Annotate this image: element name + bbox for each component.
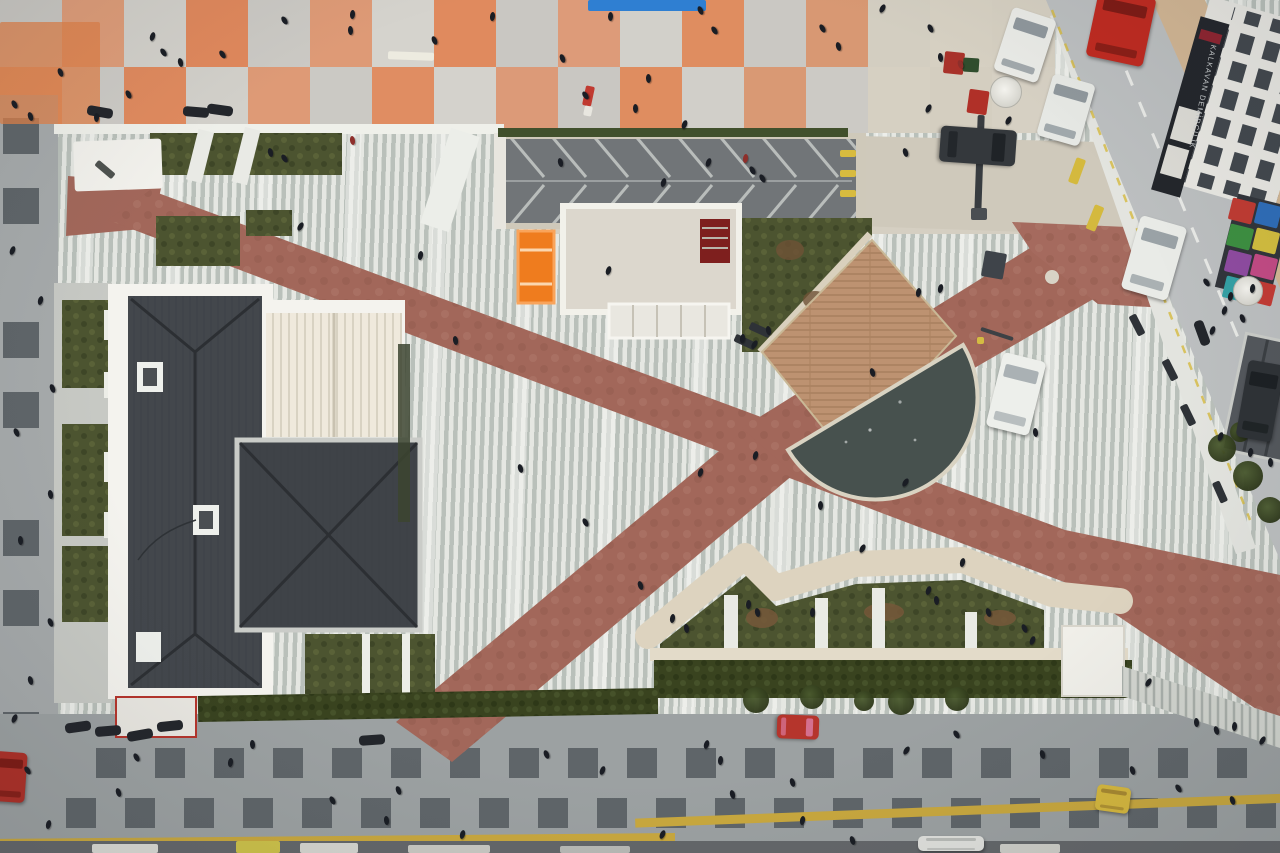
misc-object: [588, 0, 706, 11]
person-dot: [878, 3, 887, 13]
person-dot: [633, 104, 638, 113]
person-dot: [835, 42, 842, 52]
person-dot: [1032, 428, 1038, 438]
person-dot: [742, 154, 748, 164]
car-yellow-cart: [1094, 784, 1131, 814]
person-dot: [12, 427, 20, 437]
person-dot: [729, 790, 736, 800]
tree: [888, 689, 914, 715]
motorcycle: [95, 725, 122, 737]
misc-object: [583, 105, 593, 116]
person-dot: [227, 758, 233, 768]
car-red-truck: [1085, 0, 1156, 67]
motorcycle: [183, 106, 210, 118]
person-dot: [754, 608, 761, 618]
person-dot: [869, 367, 876, 377]
person-dot: [383, 816, 389, 826]
person-dot: [705, 157, 713, 167]
person-dot: [349, 136, 355, 146]
misc-object: [94, 160, 115, 180]
misc-object: [1254, 201, 1280, 228]
person-dot: [47, 490, 54, 500]
bench: [1180, 403, 1197, 426]
person-dot: [799, 816, 806, 826]
person-dot: [952, 729, 961, 739]
person-dot: [1258, 735, 1267, 745]
person-dot: [915, 288, 922, 298]
misc-object: [236, 841, 280, 853]
person-dot: [149, 31, 156, 41]
person-dot: [296, 221, 305, 231]
person-dot: [1209, 325, 1217, 335]
person-dot: [1020, 623, 1028, 633]
umbrella: [990, 76, 1022, 108]
scene-items: [0, 0, 1280, 853]
car-rear-window: [1095, 42, 1138, 59]
person-dot: [658, 829, 666, 839]
car-rear-window: [1044, 123, 1077, 139]
person-dot: [646, 74, 651, 83]
person-dot: [1213, 725, 1220, 735]
motorcycle: [157, 720, 184, 733]
person-dot: [1202, 277, 1211, 287]
tree: [743, 687, 769, 713]
bench: [1212, 480, 1228, 503]
car-rear-window: [1129, 274, 1165, 292]
car-rear-window: [0, 790, 20, 798]
car-windshield: [1012, 17, 1049, 39]
person-dot: [748, 165, 757, 175]
person-dot: [132, 752, 141, 762]
car-red-vehicle-left: [0, 751, 28, 803]
motorcycle: [126, 728, 153, 742]
person-dot: [557, 158, 564, 168]
person-dot: [1268, 458, 1273, 467]
car-windshield: [0, 758, 23, 769]
car-windshield: [1003, 363, 1039, 384]
misc-object: [840, 150, 856, 157]
person-dot: [669, 614, 675, 624]
person-dot: [926, 23, 935, 33]
car-windshield: [1053, 83, 1088, 103]
car-white-sedan-c: [1120, 215, 1187, 301]
misc-object: [1252, 227, 1280, 254]
car-windshield: [805, 718, 813, 736]
misc-object: [963, 57, 980, 72]
person-dot: [959, 558, 966, 568]
car-red-cart: [777, 714, 820, 739]
car-rear-window: [781, 718, 787, 735]
person-dot: [818, 501, 823, 510]
person-dot: [559, 53, 567, 63]
person-dot: [697, 467, 704, 477]
person-dot: [280, 15, 289, 25]
person-dot: [542, 749, 550, 759]
car-rear-window: [927, 848, 975, 850]
person-dot: [924, 103, 933, 113]
misc-object: [1000, 844, 1060, 853]
person-dot: [703, 739, 710, 749]
misc-object: [840, 170, 856, 177]
person-dot: [27, 676, 34, 686]
person-dot: [810, 608, 815, 617]
misc-object: [840, 190, 856, 197]
misc-object: [980, 327, 1014, 341]
person-dot: [1239, 313, 1247, 323]
misc-object: [971, 208, 987, 220]
car-white-cart: [918, 836, 984, 851]
person-dot: [1144, 677, 1153, 687]
person-dot: [1227, 292, 1234, 302]
umbrella: [1233, 276, 1263, 306]
car-rear-window: [1242, 420, 1269, 434]
person-dot: [710, 25, 719, 35]
tree: [800, 685, 824, 709]
misc-object: [966, 89, 989, 116]
misc-object: [1068, 157, 1086, 185]
person-dot: [489, 12, 495, 22]
person-dot: [280, 153, 289, 163]
person-dot: [18, 536, 24, 545]
person-dot: [459, 830, 466, 840]
person-dot: [517, 463, 524, 473]
car-windshield: [1101, 788, 1127, 796]
person-dot: [177, 58, 184, 68]
person-dot: [1004, 115, 1013, 125]
person-dot: [45, 820, 52, 830]
person-dot: [608, 12, 613, 21]
person-dot: [599, 765, 607, 775]
person-dot: [124, 89, 133, 99]
person-dot: [937, 284, 944, 294]
tree: [854, 691, 874, 711]
person-dot: [9, 245, 17, 255]
motorcycle: [206, 103, 233, 117]
person-dot: [902, 147, 910, 157]
person-dot: [789, 777, 796, 787]
person-dot: [660, 177, 667, 187]
person-dot: [985, 607, 993, 617]
person-dot: [605, 265, 613, 275]
car-rear-window: [947, 131, 958, 157]
person-dot: [37, 296, 44, 306]
misc-object: [1085, 204, 1104, 232]
misc-object: [1228, 197, 1257, 224]
person-dot: [267, 148, 274, 158]
person-dot: [681, 119, 689, 129]
person-dot: [937, 53, 943, 63]
misc-object: [1226, 223, 1255, 250]
bench: [1128, 313, 1145, 336]
car-windshield: [991, 133, 1007, 161]
person-dot: [1029, 635, 1037, 645]
person-dot: [637, 580, 645, 590]
car-rear-window: [993, 411, 1026, 428]
person-dot: [746, 600, 751, 609]
person-dot: [328, 795, 337, 805]
person-dot: [718, 756, 724, 765]
person-dot: [818, 23, 827, 33]
person-dot: [1247, 448, 1253, 458]
car-rear-window: [1099, 805, 1124, 811]
person-dot: [94, 113, 99, 122]
person-dot: [1232, 722, 1237, 731]
car-rear-window: [1001, 57, 1035, 75]
person-dot: [1194, 718, 1200, 727]
tree: [945, 687, 969, 711]
car-white-sedan-a: [993, 7, 1057, 84]
person-dot: [417, 251, 423, 261]
person-dot: [752, 451, 759, 461]
person-dot: [348, 26, 354, 35]
car-dark-sedan: [939, 125, 1017, 166]
person-dot: [115, 787, 123, 797]
misc-object: [981, 250, 1007, 279]
person-dot: [218, 49, 227, 59]
car-dark-car-right: [1236, 359, 1280, 442]
person-dot: [452, 336, 458, 346]
misc-object: [300, 843, 358, 853]
person-dot: [10, 713, 18, 723]
person-dot: [1221, 305, 1228, 315]
car-windshield: [1140, 227, 1179, 250]
person-dot: [430, 35, 438, 45]
person-dot: [350, 10, 356, 19]
bench: [1161, 358, 1178, 381]
person-dot: [46, 617, 54, 627]
car-windshield: [926, 838, 976, 841]
misc-object: [560, 846, 630, 853]
car-windshield: [1102, 0, 1148, 19]
person-dot: [758, 173, 767, 183]
person-dot: [858, 543, 867, 553]
car-white-sedan-b: [1036, 73, 1096, 147]
misc-object: [1224, 249, 1253, 276]
person-dot: [925, 585, 933, 595]
person-dot: [250, 740, 256, 749]
tree: [1257, 497, 1280, 523]
motorcycle: [359, 734, 386, 746]
misc-object: [92, 844, 158, 853]
person-dot: [902, 745, 911, 755]
misc-object: [408, 845, 490, 853]
person-dot: [849, 835, 857, 845]
car-windshield: [1249, 371, 1278, 390]
person-dot: [1039, 750, 1046, 760]
aerial-plaza-photo: KALKAVAN DEMİRCİLİK: [0, 0, 1280, 853]
person-dot: [49, 383, 57, 393]
person-dot: [1174, 783, 1183, 793]
misc-object: [388, 51, 434, 61]
person-dot: [933, 596, 939, 606]
person-dot: [395, 785, 403, 795]
motorcycle: [64, 720, 91, 734]
person-dot: [1229, 795, 1237, 805]
car-white-van-plaza: [985, 352, 1046, 436]
person-dot: [1129, 765, 1137, 775]
person-dot: [901, 477, 910, 487]
misc-object: [977, 337, 984, 344]
tree: [1233, 461, 1263, 491]
person-dot: [581, 517, 590, 527]
person-dot: [683, 624, 689, 634]
person-dot: [159, 47, 168, 57]
motorcycle: [1193, 319, 1211, 347]
